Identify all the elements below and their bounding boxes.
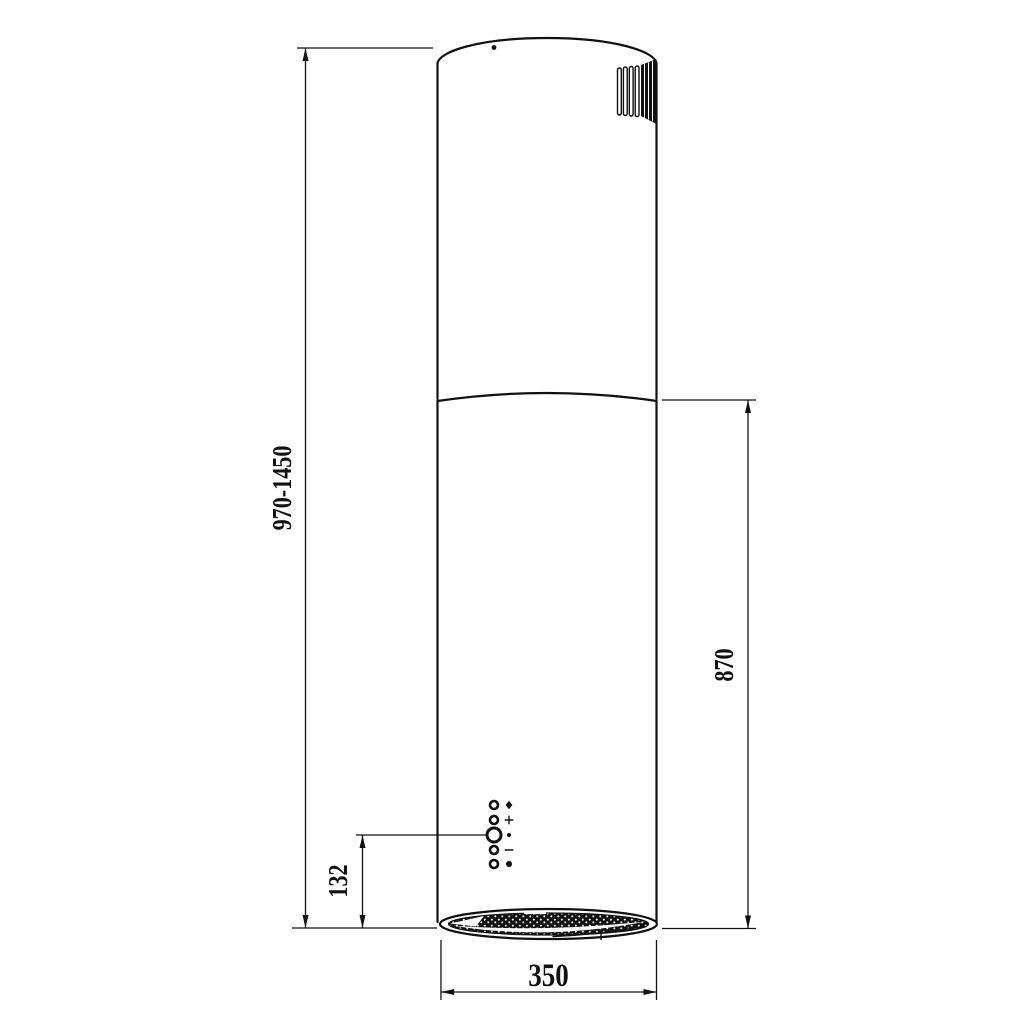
filter-highlight bbox=[524, 912, 546, 915]
diameter-label: 350 bbox=[528, 956, 569, 993]
dimension-diameter: 350 bbox=[441, 940, 657, 1000]
exhaust-vent-grille bbox=[618, 59, 657, 124]
vent-slot bbox=[635, 66, 639, 117]
alignment-dot bbox=[492, 45, 497, 50]
dimension-body-height: 870 bbox=[662, 400, 756, 929]
filled-dot-icon bbox=[506, 861, 512, 867]
body-top-arc bbox=[438, 393, 657, 401]
diamond-icon bbox=[506, 801, 513, 809]
control-button-3 bbox=[487, 828, 501, 842]
control-offset-label: 132 bbox=[324, 864, 354, 897]
control-button-1 bbox=[490, 801, 498, 809]
dimension-total-height: 970-1450 bbox=[268, 48, 437, 928]
control-button-4 bbox=[490, 846, 498, 854]
grease-filter bbox=[440, 909, 657, 940]
hood-body bbox=[438, 38, 657, 922]
control-button-5 bbox=[490, 860, 498, 868]
total-height-label: 970-1450 bbox=[268, 446, 298, 531]
dot-icon bbox=[507, 833, 511, 837]
vent-slot bbox=[629, 67, 633, 117]
control-panel bbox=[487, 801, 513, 868]
control-button-2 bbox=[490, 816, 498, 824]
vent-slot bbox=[623, 67, 627, 116]
plus-icon bbox=[505, 816, 513, 824]
body-height-label: 870 bbox=[710, 648, 740, 681]
drawing-sheet: 970-1450 870 132 350 bbox=[0, 0, 1024, 1024]
island-hood-technical-drawing: 970-1450 870 132 350 bbox=[0, 0, 1024, 1024]
vent-slot bbox=[618, 68, 622, 115]
